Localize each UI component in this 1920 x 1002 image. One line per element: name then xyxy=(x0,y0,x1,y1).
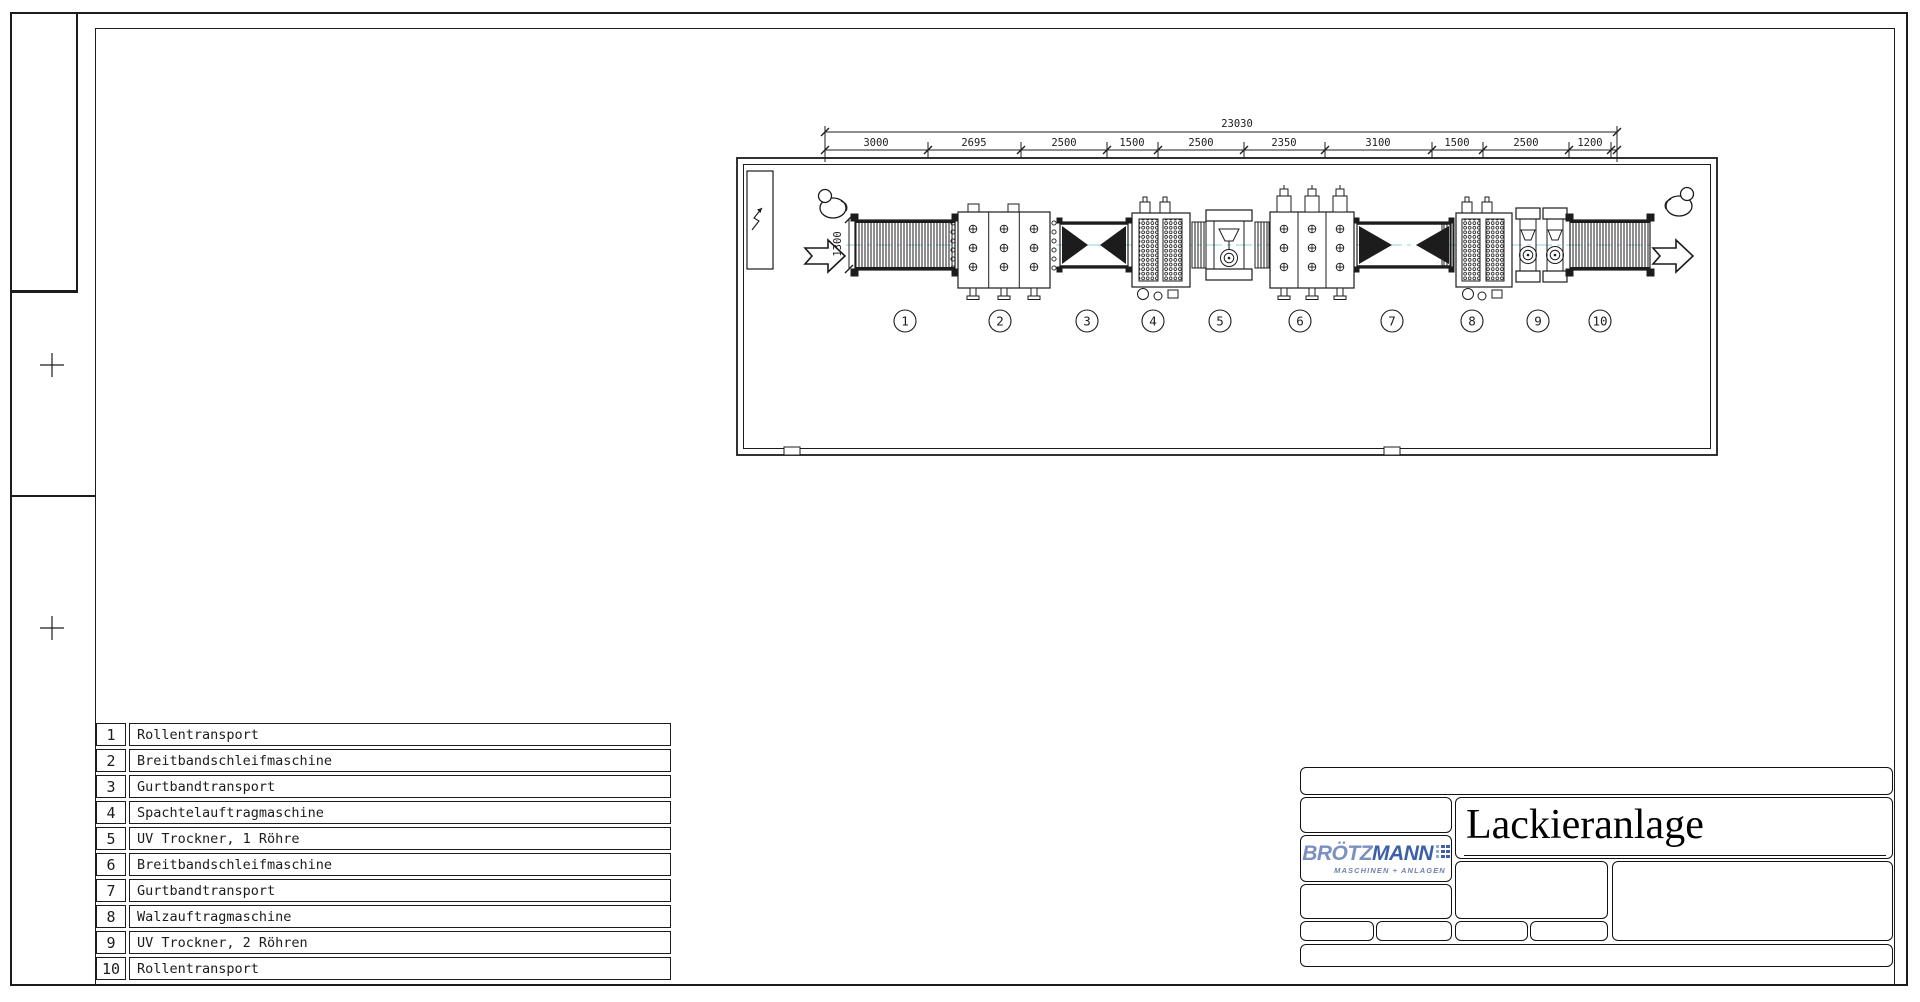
machine-8-walzauftragmaschine xyxy=(1456,197,1512,300)
drawing-title-cell: Lackieranlage xyxy=(1455,797,1893,859)
legend-no: 3 xyxy=(96,775,126,798)
title-block-cell xyxy=(1455,921,1528,941)
legend-no: 1 xyxy=(96,723,126,746)
title-block-cell xyxy=(1455,861,1608,919)
legend-row: 4Spachtelauftragmaschine xyxy=(96,801,676,824)
balloon-7: 7 xyxy=(1388,314,1396,329)
legend-row: 7Gurtbandtransport xyxy=(96,879,676,902)
uv-funnel-icon xyxy=(1219,229,1239,241)
hall-outline xyxy=(737,158,1717,455)
legend-table: 1Rollentransport 2Breitbandschleifmaschi… xyxy=(96,723,676,983)
dim-seg-7: 3100 xyxy=(1365,137,1390,149)
balloon-3: 3 xyxy=(1083,314,1091,329)
legend-label: Gurtbandtransport xyxy=(129,879,671,902)
machine-4-spachtelauftragmaschine xyxy=(1132,197,1190,300)
legend-label: Rollentransport xyxy=(129,723,671,746)
machine-7-gurtbandtransport xyxy=(1354,218,1454,272)
legend-label: Breitbandschleifmaschine xyxy=(129,749,671,772)
dim-seg-8: 1500 xyxy=(1444,137,1469,149)
legend-no: 9 xyxy=(96,931,126,954)
title-block-bottom-row xyxy=(1300,944,1893,967)
dim-seg-6: 2350 xyxy=(1271,137,1296,149)
balloon-5: 5 xyxy=(1216,314,1224,329)
title-block-cell xyxy=(1376,921,1452,941)
operator-entry-icon xyxy=(819,190,847,219)
legend-no: 6 xyxy=(96,853,126,876)
title-block-cell xyxy=(1612,861,1893,941)
dim-seg-3: 2500 xyxy=(1051,137,1076,149)
dim-seg-5: 2500 xyxy=(1188,137,1213,149)
legend-no: 7 xyxy=(96,879,126,902)
legend-row: 8Walzauftragmaschine xyxy=(96,905,676,928)
dim-seg-1: 3000 xyxy=(863,137,888,149)
legend-label: UV Trockner, 2 Röhren xyxy=(129,931,671,954)
title-block: BRÖTZMANN MASCHINEN + ANLAGEN Lackieranl… xyxy=(1300,767,1893,967)
legend-no: 2 xyxy=(96,749,126,772)
legend-label: Walzauftragmaschine xyxy=(129,905,671,928)
title-block-cell xyxy=(1300,921,1374,941)
balloon-8: 8 xyxy=(1468,314,1476,329)
balloon-1: 1 xyxy=(901,314,909,329)
dim-total: 23030 xyxy=(1221,118,1253,130)
legend-label: Breitbandschleifmaschine xyxy=(129,853,671,876)
entry-width-dimension xyxy=(845,215,853,273)
roller-strip-3 xyxy=(1442,222,1454,268)
legend-label: Gurtbandtransport xyxy=(129,775,671,798)
legend-row: 2Breitbandschleifmaschine xyxy=(96,749,676,772)
legend-label: Rollentransport xyxy=(129,957,671,980)
legend-label: Spachtelauftragmaschine xyxy=(129,801,671,824)
logo-dots-icon xyxy=(1436,845,1450,859)
centering-mark-upper xyxy=(40,353,64,377)
title-block-cell xyxy=(1530,921,1608,941)
title-block-cell xyxy=(1300,884,1452,919)
legend-row: 9UV Trockner, 2 Röhren xyxy=(96,931,676,954)
roller-strip-2 xyxy=(1255,222,1269,268)
balloon-6: 6 xyxy=(1296,314,1304,329)
balloon-4: 4 xyxy=(1149,314,1157,329)
legend-row: 10Rollentransport xyxy=(96,957,676,980)
drawing-sheet: 23030 3000 2695 2500 1500 2500 2350 3100… xyxy=(0,0,1920,1002)
legend-row: 1Rollentransport xyxy=(96,723,676,746)
drawing-title-underline xyxy=(1464,855,1886,856)
legend-label: UV Trockner, 1 Röhre xyxy=(129,827,671,850)
balloon-2: 2 xyxy=(996,314,1004,329)
uv-lamp-icon xyxy=(1221,250,1238,267)
machine-1-rollentransport xyxy=(851,214,959,276)
dim-entry-width: 1300 xyxy=(832,231,844,256)
drawing-title: Lackieranlage xyxy=(1466,801,1704,849)
legend-no: 8 xyxy=(96,905,126,928)
legend-no: 5 xyxy=(96,827,126,850)
machine-6-breitbandschleifmaschine xyxy=(1270,185,1354,300)
title-block-top-row xyxy=(1300,767,1893,795)
dim-seg-2: 2695 xyxy=(961,137,986,149)
roller-strip-1 xyxy=(1192,222,1206,268)
balloon-10: 10 xyxy=(1592,314,1607,329)
logo-subtitle: MASCHINEN + ANLAGEN xyxy=(1334,866,1446,875)
flow-arrow-exit-icon xyxy=(1653,240,1693,272)
legend-no: 10 xyxy=(96,957,126,980)
legend-row: 5UV Trockner, 1 Röhre xyxy=(96,827,676,850)
legend-no: 4 xyxy=(96,801,126,824)
legend-row: 3Gurtbandtransport xyxy=(96,775,676,798)
dim-seg-10: 1200 xyxy=(1577,137,1602,149)
machine-2-breitbandschleifmaschine xyxy=(951,204,1056,300)
hall-door-left xyxy=(784,447,800,455)
balloon-9: 9 xyxy=(1534,314,1542,329)
hall-door-right xyxy=(1384,447,1400,455)
title-block-cell xyxy=(1300,797,1452,833)
centering-mark-lower xyxy=(40,616,64,640)
legend-row: 6Breitbandschleifmaschine xyxy=(96,853,676,876)
dim-seg-9: 2500 xyxy=(1513,137,1538,149)
logo-text-light: BRÖTZ xyxy=(1302,843,1372,864)
machine-10-rollentransport xyxy=(1566,214,1654,276)
logo-text-bold: MANN xyxy=(1372,843,1433,864)
operator-exit-icon xyxy=(1665,188,1693,217)
dim-seg-4: 1500 xyxy=(1119,137,1144,149)
dimension-chain xyxy=(821,126,1621,162)
wall-panel xyxy=(747,171,773,269)
company-logo: BRÖTZMANN MASCHINEN + ANLAGEN xyxy=(1300,835,1452,882)
